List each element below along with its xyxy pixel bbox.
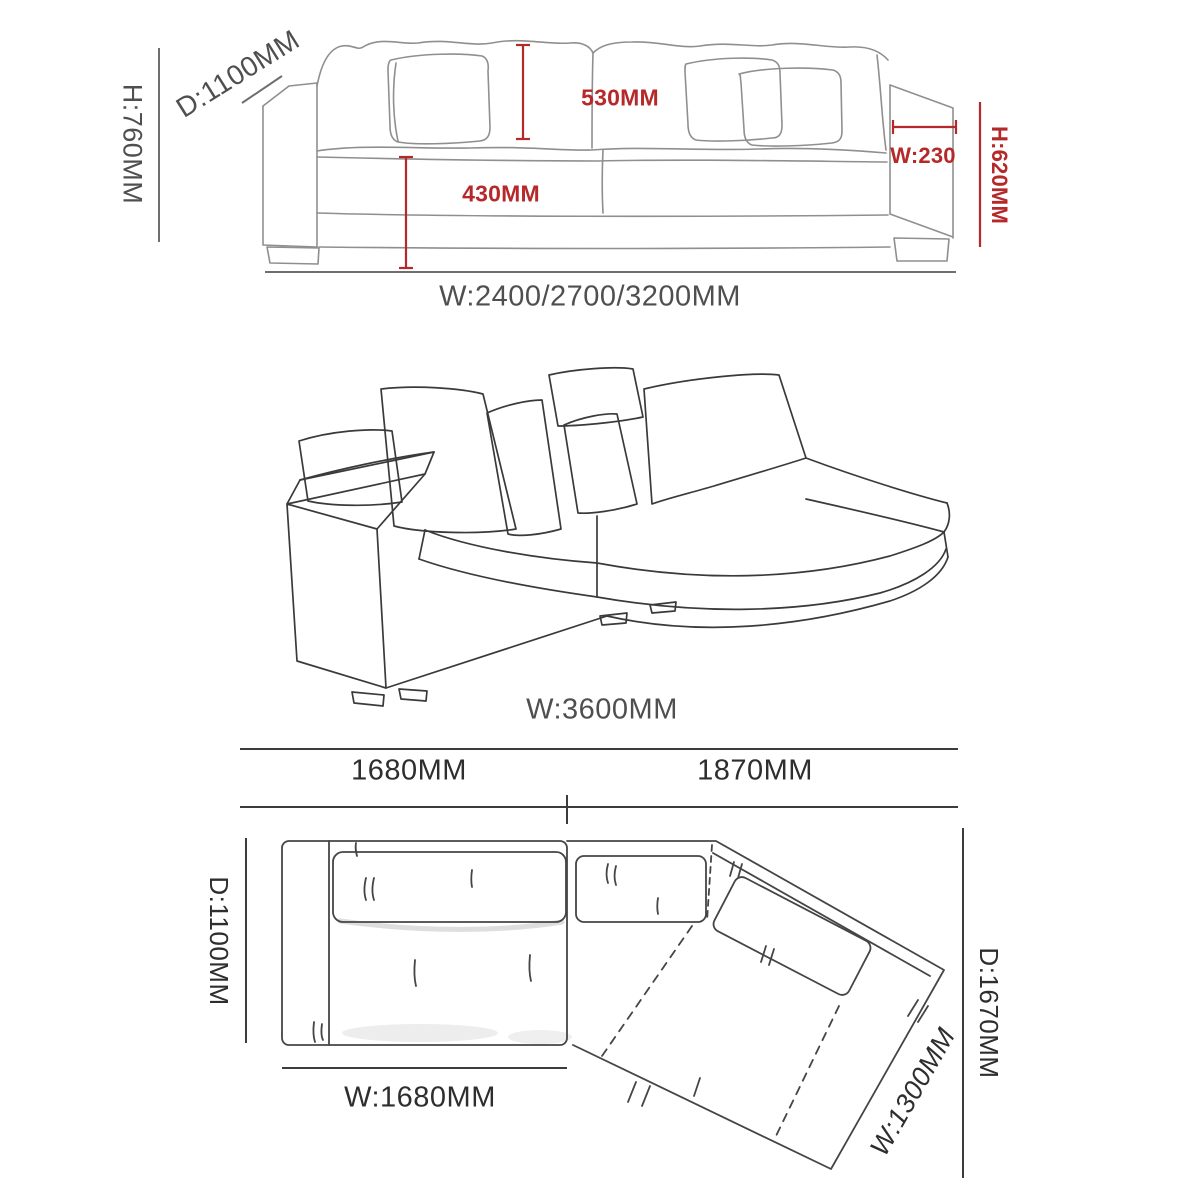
front-view-dimension-lines — [159, 48, 956, 272]
sofa-dimension-diagram: H:760MM D:1100MM 530MM 430MM W:230 H:620… — [0, 0, 1200, 1200]
plan-right-section-width-label: 1870MM — [697, 757, 813, 786]
seat-height-label: 430MM — [462, 183, 540, 206]
diagram-artwork — [0, 0, 1200, 1200]
armrest-width-label: W:230 — [890, 145, 955, 167]
back-cushion-height-label: 530MM — [581, 87, 659, 110]
armrest-height-label: H:620MM — [988, 126, 1010, 224]
plan-left-width-label: W:1680MM — [344, 1084, 496, 1113]
front-width-options-label: W:2400/2700/3200MM — [439, 283, 741, 312]
sofa-plan-view-drawing — [282, 841, 944, 1169]
sofa-perspective-view-drawing — [287, 368, 949, 706]
perspective-total-width-label: W:3600MM — [526, 696, 678, 725]
perspective-dimension-lines — [240, 749, 958, 824]
plan-total-depth-label: D:1670MM — [976, 947, 1002, 1078]
plan-left-depth-label: D:1100MM — [206, 876, 232, 1005]
front-overall-height-label: H:760MM — [119, 84, 146, 205]
plan-left-section-width-label: 1680MM — [351, 757, 467, 786]
sofa-front-view-drawing — [263, 41, 953, 264]
